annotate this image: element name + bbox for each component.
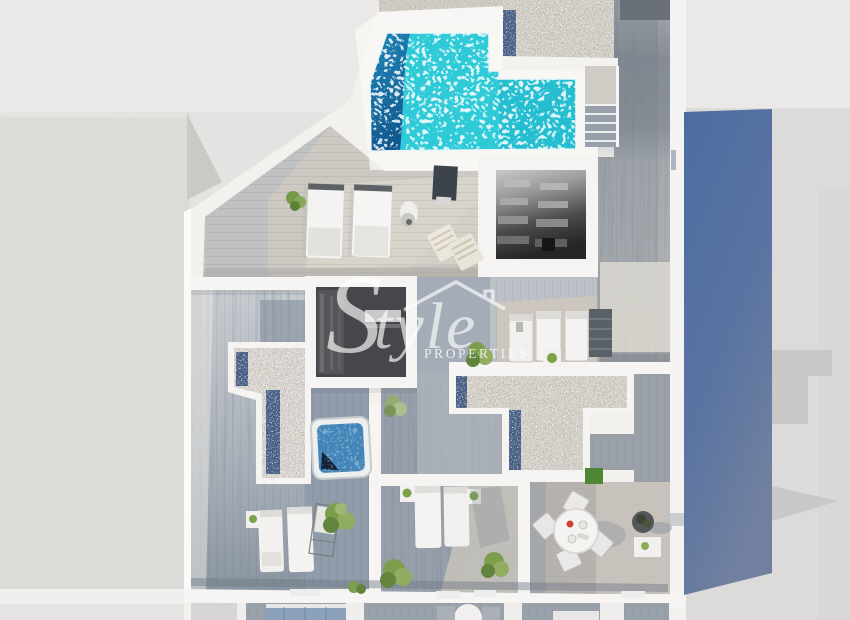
svg-text:PROPERTIES: PROPERTIES (424, 346, 529, 361)
